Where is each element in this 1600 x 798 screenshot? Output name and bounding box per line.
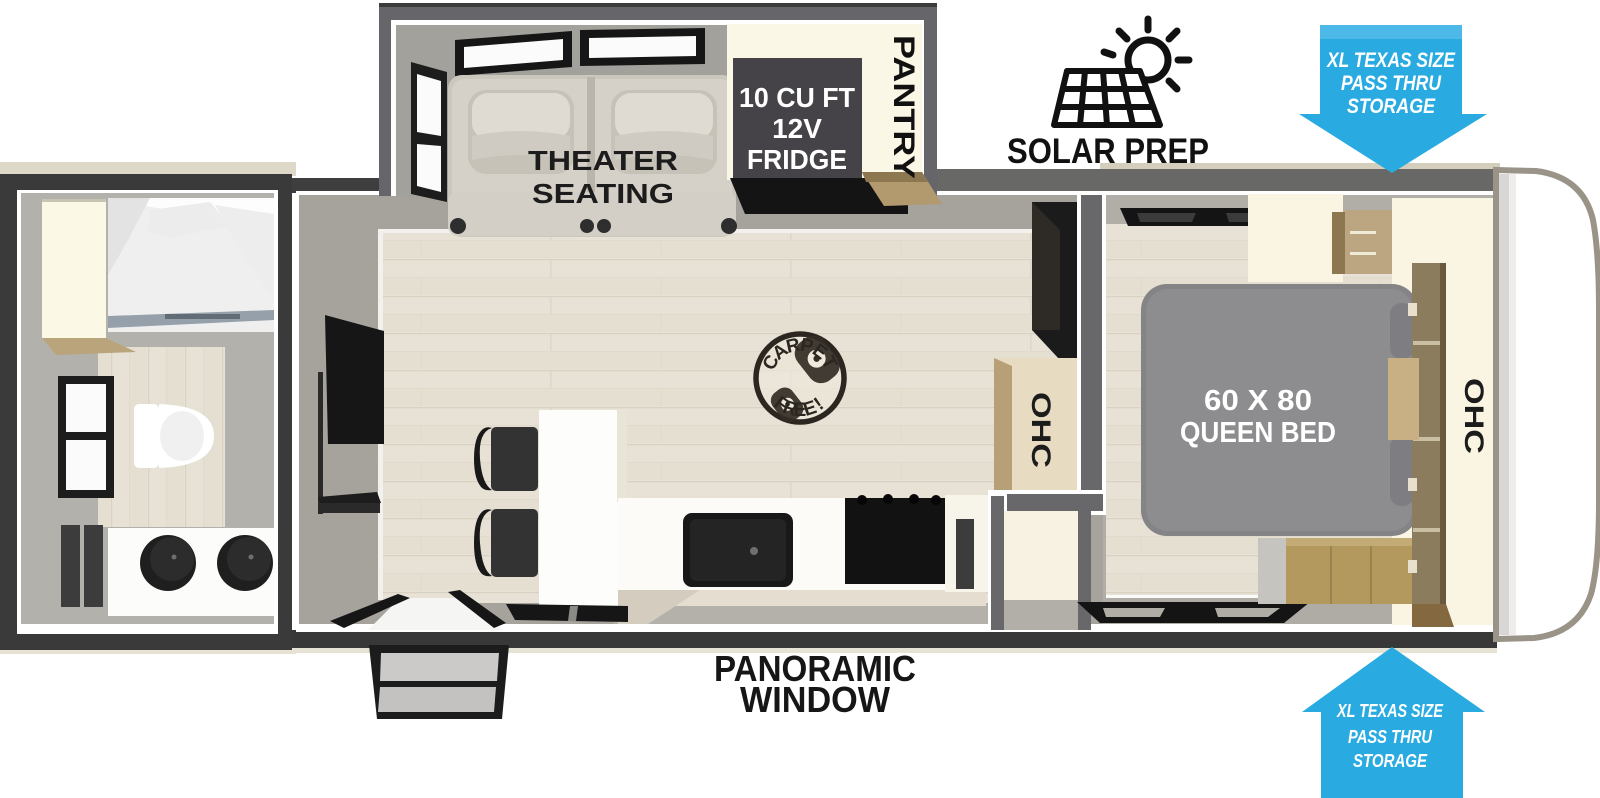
svg-text:SOLAR PREP: SOLAR PREP [1007, 132, 1209, 171]
svg-text:SEATING: SEATING [532, 178, 674, 209]
svg-text:OHC: OHC [1026, 392, 1056, 468]
svg-text:60 X 80: 60 X 80 [1204, 385, 1312, 417]
svg-text:PANTRY: PANTRY [887, 35, 920, 179]
svg-text:FRIDGE: FRIDGE [747, 144, 847, 175]
svg-text:XL TEXAS SIZE: XL TEXAS SIZE [1336, 701, 1444, 721]
svg-text:QUEEN BED: QUEEN BED [1180, 417, 1336, 449]
svg-text:OHC: OHC [1459, 378, 1489, 454]
svg-text:PASS THRU: PASS THRU [1341, 72, 1442, 95]
svg-text:PASS THRU: PASS THRU [1348, 727, 1433, 747]
svg-text:10 CU FT: 10 CU FT [739, 82, 855, 113]
svg-text:THEATER: THEATER [528, 145, 678, 176]
svg-text:STORAGE: STORAGE [1353, 751, 1428, 771]
svg-text:STORAGE: STORAGE [1347, 95, 1436, 118]
svg-text:WINDOW: WINDOW [740, 679, 890, 720]
svg-text:12V: 12V [772, 113, 822, 144]
svg-text:XL TEXAS SIZE: XL TEXAS SIZE [1326, 49, 1456, 72]
